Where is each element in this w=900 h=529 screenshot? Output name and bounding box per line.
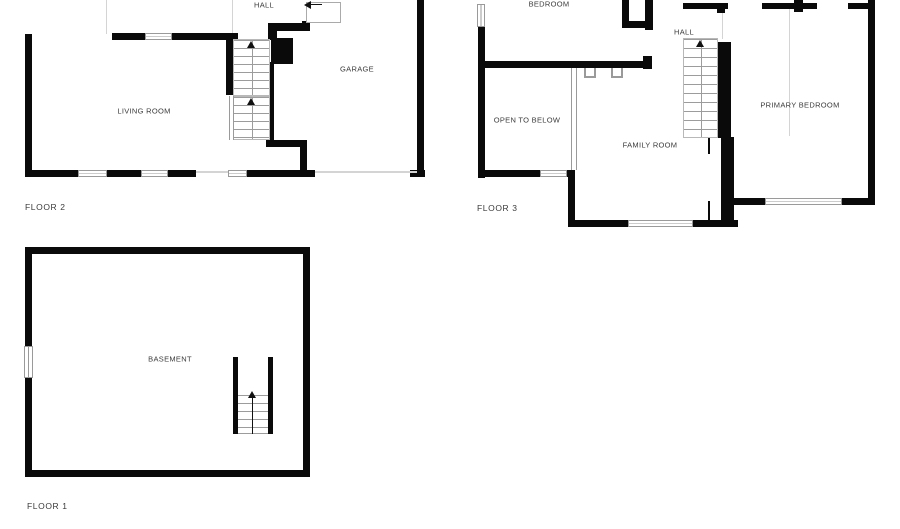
floor-label: FLOOR 2 (25, 202, 66, 212)
room-label-hall: HALL (254, 1, 274, 10)
partition-line (106, 0, 107, 34)
wall (300, 140, 307, 177)
wall (25, 170, 78, 177)
wall (226, 33, 233, 95)
left-arrow-icon (304, 1, 311, 9)
wall (622, 0, 629, 22)
window (24, 346, 33, 378)
wall (168, 170, 196, 177)
window (78, 170, 107, 177)
window (141, 170, 168, 177)
wall (718, 42, 731, 138)
wall (568, 220, 628, 227)
room-label-hall: HALL (674, 28, 694, 37)
wall (622, 21, 648, 28)
door-swing (306, 2, 341, 23)
room-label-basement: BASEMENT (148, 355, 192, 364)
wall (25, 34, 32, 177)
wall (25, 247, 32, 346)
room-label-bedroom: BEDROOM (529, 0, 570, 9)
up-arrow-stem (252, 398, 253, 434)
window (765, 198, 842, 205)
wall (268, 23, 277, 40)
left-arrow-stem (311, 4, 322, 5)
room-label-garage: GARAGE (340, 65, 374, 74)
wall (478, 26, 485, 178)
up-arrow-icon (247, 98, 255, 105)
room-label-family-room: FAMILY ROOM (623, 141, 678, 150)
wall (25, 378, 32, 477)
up-arrow-icon (696, 40, 704, 47)
wall (643, 56, 652, 69)
partition-line (789, 9, 790, 136)
wall (721, 137, 734, 227)
room-label-primary-bedroom: PRIMARY BEDROOM (760, 101, 839, 110)
wall (417, 0, 424, 177)
room-label-living-room: LIVING ROOM (117, 107, 170, 116)
wall (848, 3, 875, 9)
partition-line (232, 0, 233, 34)
door-post (584, 68, 596, 78)
wall (112, 33, 145, 40)
staircase (683, 38, 718, 138)
opening-line (196, 171, 228, 173)
wall (107, 170, 141, 177)
door-post (611, 68, 623, 78)
wall (25, 247, 310, 254)
partition-line (722, 9, 723, 39)
stair-side-rail (229, 96, 234, 140)
floor-label: FLOOR 1 (27, 501, 68, 511)
window (540, 170, 567, 177)
wall (868, 0, 875, 205)
window (145, 33, 172, 40)
garage-door-line (315, 171, 417, 173)
stair-treads (238, 395, 268, 434)
room-label-open-to-below: OPEN TO BELOW (494, 116, 561, 125)
wall (717, 8, 725, 13)
window (228, 170, 247, 177)
wall (708, 201, 710, 223)
wall (478, 61, 652, 68)
floor-label: FLOOR 3 (477, 203, 518, 213)
up-arrow-icon (248, 391, 256, 398)
wall (568, 172, 575, 227)
wall (708, 137, 710, 154)
wall (303, 247, 310, 477)
wall (271, 38, 293, 64)
railing (571, 68, 577, 170)
wall (762, 3, 817, 9)
stair-rail (268, 357, 273, 434)
wall (794, 0, 803, 12)
window (477, 4, 485, 27)
wall (25, 470, 310, 477)
window (628, 220, 693, 227)
floorplan-canvas: HALL LIVING ROOM GARAGE FLOOR 2 (0, 0, 900, 529)
up-arrow-icon (247, 41, 255, 48)
